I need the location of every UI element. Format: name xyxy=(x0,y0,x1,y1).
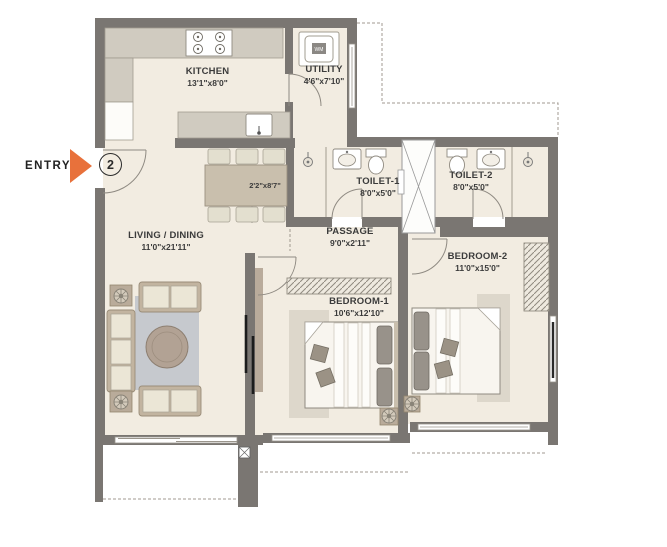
wardrobe-1 xyxy=(287,278,391,294)
washing-machine-icon: WM xyxy=(299,32,339,66)
basin-icon xyxy=(333,149,361,169)
entry-label: ENTRY xyxy=(25,160,71,172)
plant-icon xyxy=(405,397,419,411)
basin-icon xyxy=(477,149,505,169)
floor-plan: WM xyxy=(0,0,667,547)
plant-icon xyxy=(382,409,396,423)
svg-text:WM: WM xyxy=(315,47,324,53)
sofa-set xyxy=(107,282,201,416)
wardrobe-2 xyxy=(524,243,549,311)
plant-icon xyxy=(114,395,128,409)
hob-icon xyxy=(186,30,232,56)
entry-door-number: 2 xyxy=(99,153,122,176)
dining-niche-dims: 2'2"x8'7" xyxy=(240,181,290,190)
sink-icon xyxy=(246,114,272,136)
plant-icon xyxy=(114,289,128,303)
coffee-table xyxy=(146,326,188,368)
bed-1 xyxy=(305,322,398,408)
bed-2 xyxy=(412,308,500,394)
junction-box-icon xyxy=(239,447,250,458)
plan-graphics: WM xyxy=(0,0,667,547)
services-shaft xyxy=(398,140,435,233)
entry-arrow-icon xyxy=(70,149,92,183)
